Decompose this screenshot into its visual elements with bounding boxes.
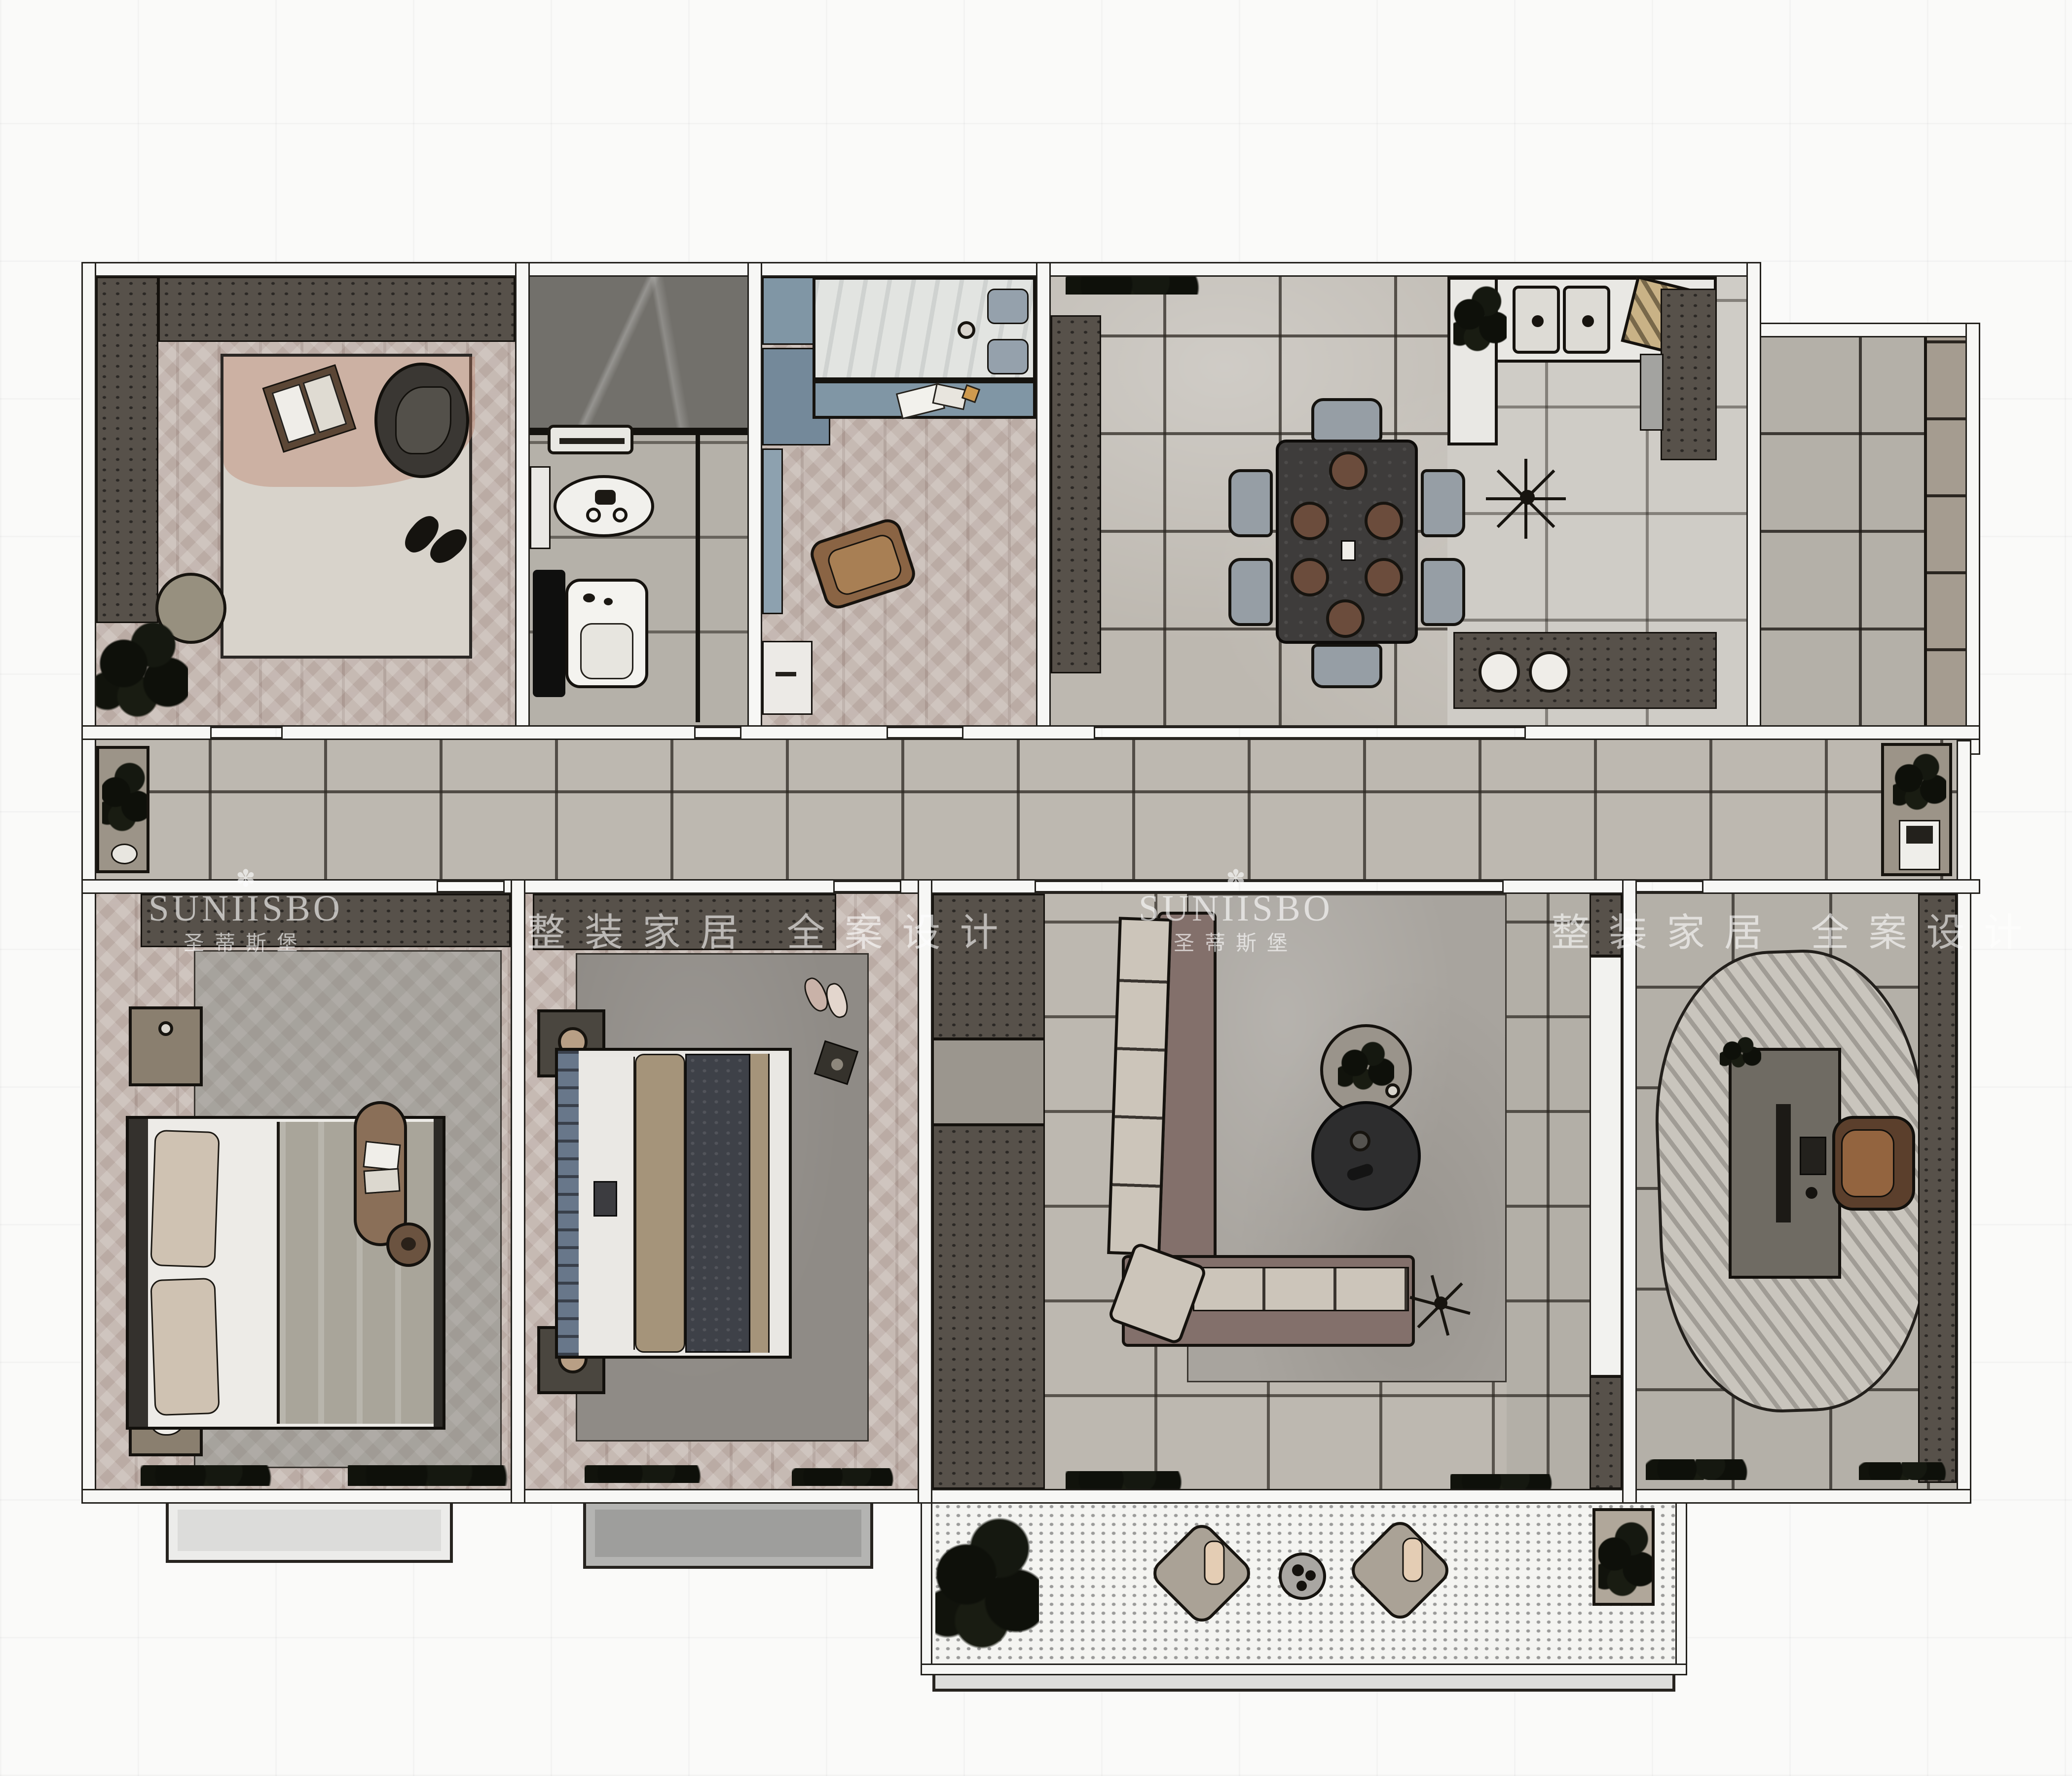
room-study [1637, 894, 1957, 1489]
wall [511, 879, 525, 1504]
wall [921, 1502, 932, 1675]
plant-icon [1893, 749, 1946, 814]
wardrobe [141, 894, 511, 947]
cabinet-tall [96, 277, 158, 623]
wall [1965, 323, 1980, 755]
window-plants [141, 1465, 274, 1486]
plant-icon [935, 1505, 1039, 1659]
cabinet-white [762, 641, 813, 715]
decor-niche [1881, 743, 1952, 876]
wall [1675, 1502, 1687, 1675]
sideboard [1051, 315, 1101, 673]
bay-window [166, 1498, 453, 1563]
pendant-lamp-icon [1486, 457, 1566, 537]
room-living [932, 894, 1622, 1489]
floor-chair [807, 516, 919, 612]
office-chair [1832, 1116, 1915, 1211]
wall [1036, 262, 1051, 740]
book [363, 1141, 401, 1171]
hob-burner [1479, 651, 1520, 693]
appliance [1640, 354, 1664, 431]
towel-rail [548, 425, 633, 454]
wall [1502, 879, 1628, 894]
bay-window [583, 1498, 873, 1569]
window-plants [348, 1465, 511, 1486]
headboard [129, 1119, 148, 1427]
blanket-tan [750, 1054, 768, 1353]
plant-icon [1338, 1039, 1394, 1092]
nightstand [129, 1006, 203, 1086]
wall [740, 725, 888, 740]
plate [1291, 558, 1329, 596]
lounge-chair [374, 363, 469, 478]
room-bedroom-master [96, 894, 511, 1489]
room-dining-kitchen [1051, 277, 1746, 725]
window-plants [1450, 1474, 1554, 1489]
kitchen-sink [1563, 286, 1610, 354]
dining-chair [1311, 398, 1382, 443]
dining-chair [1311, 644, 1382, 688]
floor-fan-icon [1409, 1273, 1471, 1335]
plant-icon [96, 614, 188, 724]
wall [747, 262, 762, 740]
area-rug [221, 354, 472, 659]
window-plants [1646, 1459, 1749, 1480]
pouf [386, 1222, 431, 1267]
book [363, 1168, 400, 1194]
bench-blue [813, 380, 1036, 419]
console [1899, 820, 1940, 870]
bed [813, 277, 1036, 380]
tv-cabinet [1590, 1376, 1622, 1489]
window-plants [585, 1465, 703, 1483]
plate [1291, 502, 1329, 540]
wall [921, 1664, 1687, 1675]
coffee-table-large [1311, 1101, 1421, 1211]
tv-wall-tiles [1507, 894, 1590, 1489]
pillow [987, 289, 1029, 324]
plate [1365, 502, 1403, 540]
phone [593, 1181, 617, 1217]
plate [1365, 558, 1403, 596]
wall [1746, 262, 1761, 740]
tv-cabinet [1590, 894, 1622, 956]
storage-niche [932, 1039, 1045, 1125]
wall [81, 725, 212, 740]
blanket-tan [635, 1054, 685, 1353]
storage-column [932, 1125, 1045, 1489]
wall [1702, 879, 1980, 894]
dining-table [1276, 440, 1418, 644]
wall [515, 262, 530, 740]
wall [1524, 725, 1980, 740]
dining-chair [1421, 558, 1465, 626]
plant-icon [102, 755, 147, 838]
shower-area [530, 277, 747, 434]
wardrobe [158, 277, 515, 342]
tv-panel [1590, 956, 1622, 1376]
decor-niche [96, 746, 149, 873]
blanket-navy [685, 1054, 750, 1353]
lounge-chair [1151, 1514, 1249, 1650]
hob-burner [1529, 651, 1570, 693]
tall-cabinet [1661, 289, 1717, 460]
wall [503, 879, 835, 894]
desk [1729, 1048, 1841, 1279]
wall [81, 262, 1758, 277]
room-bedroom-small [762, 277, 1036, 725]
headboard [558, 1051, 579, 1356]
toilet [533, 570, 651, 697]
tile-border-strip [1924, 337, 1965, 725]
windowsill-plants [1066, 277, 1202, 295]
pillow [150, 1278, 220, 1416]
kitchen-sink [1513, 286, 1560, 354]
floorplan-canvas: ✽ SUNIISBO 圣蒂斯堡 整装家居 全案设计 ✽ SUNIISBO 圣蒂斯… [0, 0, 2072, 1776]
storage-column [932, 894, 1045, 1039]
counter-decor [1453, 280, 1507, 357]
pillow [150, 1130, 220, 1268]
room-balcony-bottom [932, 1502, 1675, 1664]
slippers [807, 977, 851, 1024]
window-plants [1066, 1471, 1184, 1489]
wall [1622, 879, 1637, 1504]
room-bedroom-2 [525, 894, 918, 1489]
bookcase [1918, 894, 1957, 1483]
dining-chair [1228, 469, 1273, 537]
dining-chair [1421, 469, 1465, 537]
plate [1329, 451, 1368, 490]
room-bathroom [530, 277, 747, 725]
planter [1592, 1508, 1655, 1606]
desk-plant [1720, 1036, 1761, 1069]
pillow [987, 339, 1029, 374]
wall [1746, 323, 1980, 337]
room-cloakroom [96, 277, 515, 725]
cup [958, 321, 975, 339]
wall [281, 725, 696, 740]
hallway [96, 740, 1957, 879]
plate [1326, 599, 1365, 638]
window-plants [792, 1468, 895, 1486]
wall [962, 725, 1095, 740]
room-balcony-top [1758, 337, 1965, 725]
wall [81, 1489, 1971, 1504]
pillow-zone [579, 1057, 635, 1350]
side-table [1279, 1553, 1326, 1600]
vanity-counter [530, 466, 551, 549]
slippers [410, 514, 469, 570]
bed [555, 1048, 792, 1359]
wardrobe [533, 894, 836, 950]
hob-counter [1453, 632, 1717, 709]
wall [918, 879, 932, 1504]
lounge-chair [1350, 1511, 1447, 1647]
sink-basin [554, 475, 654, 537]
dining-chair [1228, 558, 1273, 626]
wall [1957, 740, 1971, 1502]
wall [81, 879, 438, 894]
glass-divider [696, 434, 700, 722]
window-plants [1859, 1462, 1948, 1480]
cabinet-blue-strip [762, 448, 783, 614]
